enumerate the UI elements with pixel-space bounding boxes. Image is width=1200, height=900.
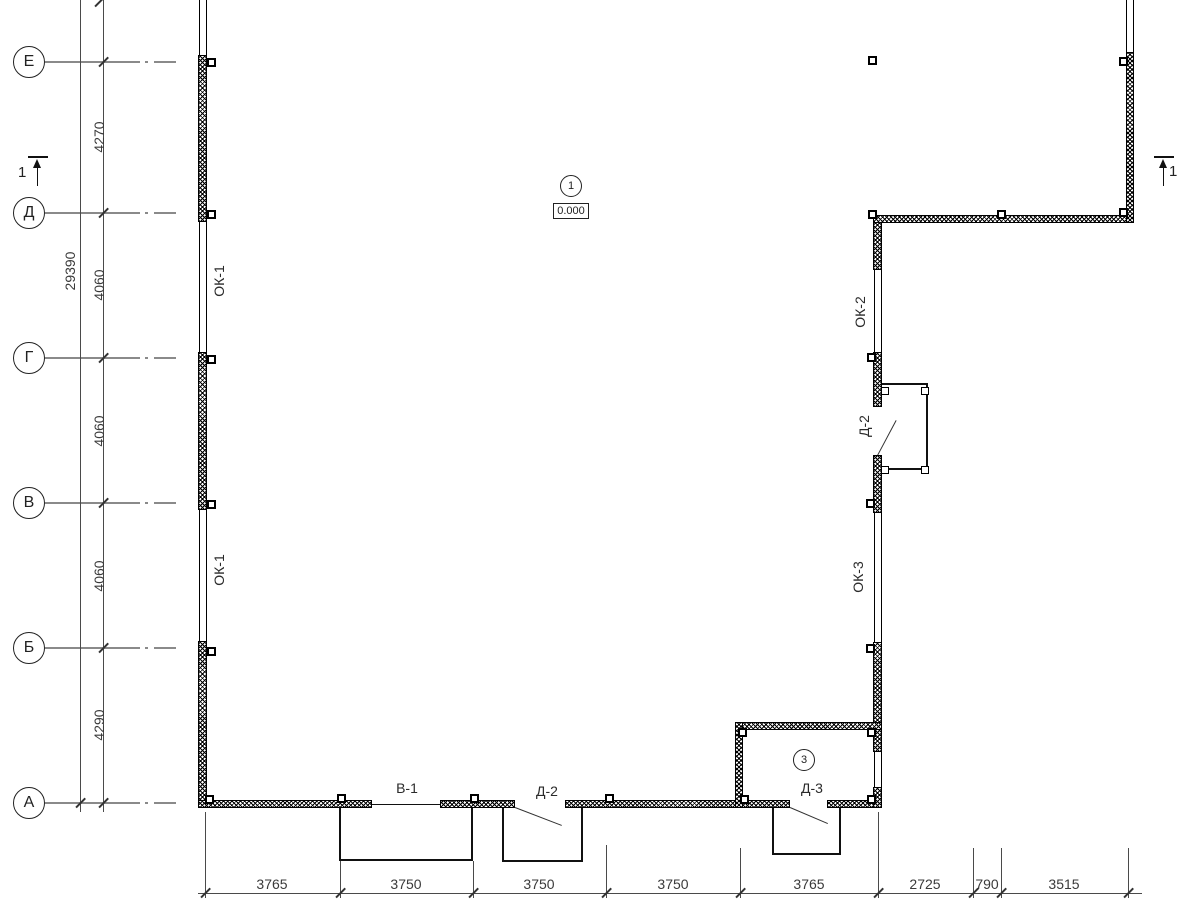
section-number-right: 1 <box>1169 163 1177 180</box>
label-window-ok2: ОК-2 <box>852 290 868 334</box>
plan-node-number: 1 <box>568 180 574 192</box>
column-marker <box>867 795 876 804</box>
floor-plan-canvas: Е Д Г В Б А 29390 4270 4060 4060 4060 42… <box>0 0 1200 900</box>
dim-bottom-1: 3750 <box>376 876 436 892</box>
level-mark: 0.000 <box>553 203 589 219</box>
dim-bottom-4: 3765 <box>779 876 839 892</box>
column-marker <box>207 210 216 219</box>
column-marker <box>866 499 875 508</box>
dim-overall: 29390 <box>62 236 78 306</box>
dim-bottom-2: 3750 <box>509 876 569 892</box>
dim-left-4060c: 4060 <box>91 551 107 601</box>
dim-left-4290: 4290 <box>91 700 107 750</box>
grid-line-e <box>45 61 118 62</box>
wall-right-1 <box>873 218 882 270</box>
dim-left-4060b: 4060 <box>91 406 107 456</box>
dim-extension <box>878 812 879 898</box>
label-window-ok3: ОК-3 <box>850 555 866 599</box>
section-number-left: 1 <box>18 164 26 181</box>
grid-line-b-dash <box>118 647 180 648</box>
window-ok1-lower <box>199 510 207 641</box>
room-node-number: 3 <box>801 754 807 766</box>
level-value: 0.000 <box>557 205 585 217</box>
label-window-ok1-lower: ОК-1 <box>211 548 227 592</box>
door-d2-vestibule-bump <box>882 383 928 470</box>
column-marker-isolated <box>868 56 877 65</box>
grid-line-g <box>45 357 118 358</box>
grid-line-b <box>45 647 118 648</box>
column-marker <box>207 647 216 656</box>
axis-label: А <box>24 794 35 812</box>
window-strip-top <box>199 0 207 55</box>
label-door-d2-bottom: Д-2 <box>527 783 567 799</box>
dim-extension <box>205 812 206 898</box>
column-marker <box>866 644 875 653</box>
column-marker <box>867 728 876 737</box>
label-door-d2-wall: Д-2 <box>856 404 872 448</box>
column-marker <box>921 387 929 395</box>
wall-left-gv <box>198 352 207 510</box>
dim-bottom-7: 3515 <box>1034 876 1094 892</box>
axis-label: Г <box>25 349 34 367</box>
grid-line-g-dash <box>118 357 180 358</box>
column-marker <box>868 210 877 219</box>
column-marker <box>997 210 1006 219</box>
column-marker <box>740 795 749 804</box>
axis-label: В <box>24 494 35 512</box>
window-ok3 <box>874 513 882 642</box>
label-window-ok1-upper: ОК-1 <box>211 259 227 303</box>
column-marker <box>1119 57 1128 66</box>
opening-v1-sill <box>372 804 440 805</box>
grid-line-e-dash <box>118 61 180 62</box>
axis-bubble-d: Д <box>13 197 45 229</box>
column-marker <box>867 353 876 362</box>
column-marker <box>921 466 929 474</box>
column-marker <box>207 58 216 67</box>
axis-bubble-v: В <box>13 487 45 519</box>
axis-bubble-g: Г <box>13 342 45 374</box>
axis-bubble-a: А <box>13 787 45 819</box>
label-door-d3: Д-3 <box>792 780 832 796</box>
axis-bubble-b: Б <box>13 632 45 664</box>
partition-top <box>735 722 882 730</box>
grid-line-d <box>45 212 118 213</box>
porch-v1 <box>339 808 473 861</box>
dim-bottom-0: 3765 <box>242 876 302 892</box>
section-mark-stem <box>1163 167 1165 186</box>
column-marker <box>337 794 346 803</box>
wall-bottom-1 <box>198 800 372 808</box>
axis-label: Б <box>24 639 35 657</box>
window-ok1-upper <box>199 222 207 352</box>
grid-line-v <box>45 502 118 503</box>
wall-right-upper <box>1126 52 1134 223</box>
column-marker <box>605 794 614 803</box>
grid-line-a-dash <box>118 802 180 803</box>
section-mark-stem <box>37 167 39 186</box>
axis-label: Е <box>24 53 35 71</box>
room-node-marker: 3 <box>793 749 815 771</box>
dim-left-4060a: 4060 <box>91 260 107 310</box>
window-ok2 <box>874 270 882 352</box>
label-gate-v1: В-1 <box>387 780 427 796</box>
column-marker <box>205 795 214 804</box>
dim-line-overall <box>80 0 81 812</box>
column-marker <box>881 387 889 395</box>
dim-bottom-6: 790 <box>972 876 1002 892</box>
dim-bottom-3: 3750 <box>643 876 703 892</box>
column-marker <box>207 355 216 364</box>
wall-left-ed <box>198 55 207 222</box>
porch-d2 <box>502 808 583 862</box>
column-marker <box>470 794 479 803</box>
dim-bottom-5: 2725 <box>895 876 955 892</box>
window-small-right <box>874 752 882 787</box>
wall-left-ba <box>198 641 207 808</box>
plan-node-marker: 1 <box>560 175 582 197</box>
axis-label: Д <box>24 204 35 222</box>
axis-bubble-e: Е <box>13 46 45 78</box>
column-marker <box>1119 208 1128 217</box>
column-marker <box>738 728 747 737</box>
grid-line-v-dash <box>118 502 180 503</box>
dim-left-4270: 4270 <box>91 112 107 162</box>
wall-bottom-3 <box>565 800 790 808</box>
window-strip-top-right <box>1126 0 1134 52</box>
column-marker <box>207 500 216 509</box>
column-marker <box>881 466 889 474</box>
grid-line-d-dash <box>118 212 180 213</box>
